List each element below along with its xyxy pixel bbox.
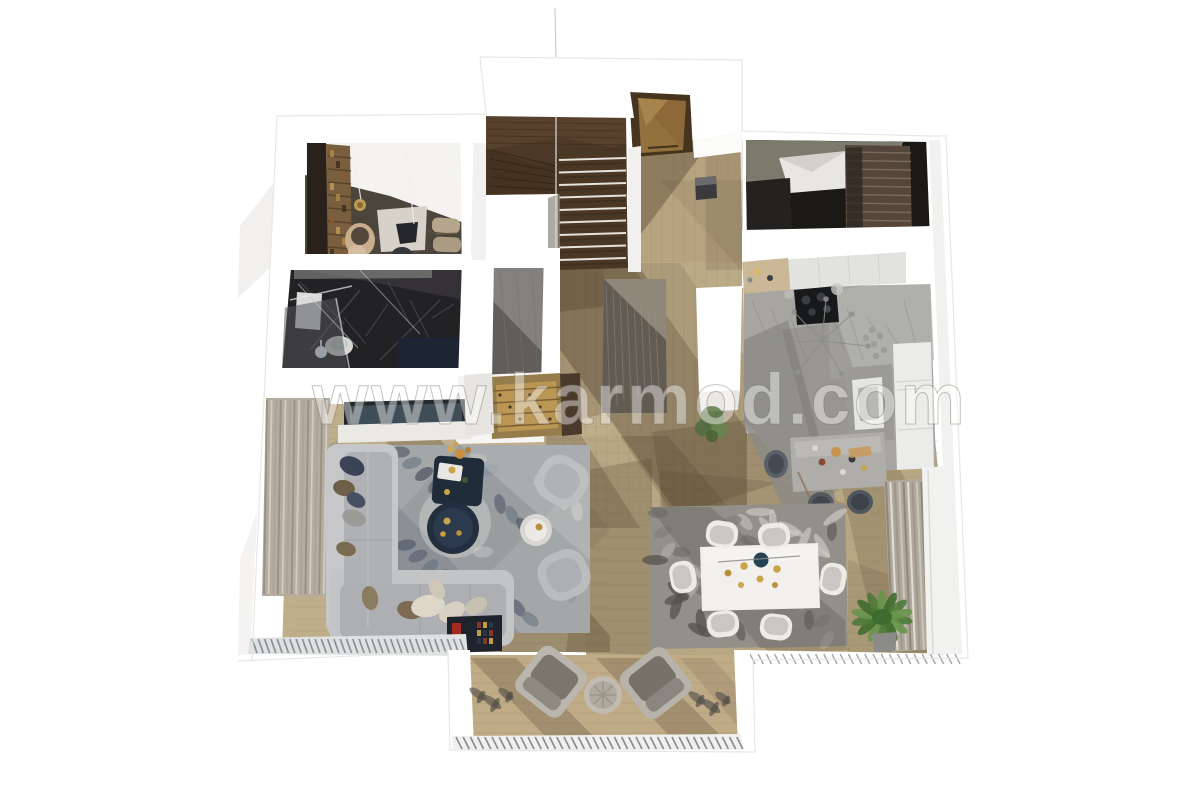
svg-text:www.karmod.com: www.karmod.com [311,360,967,440]
